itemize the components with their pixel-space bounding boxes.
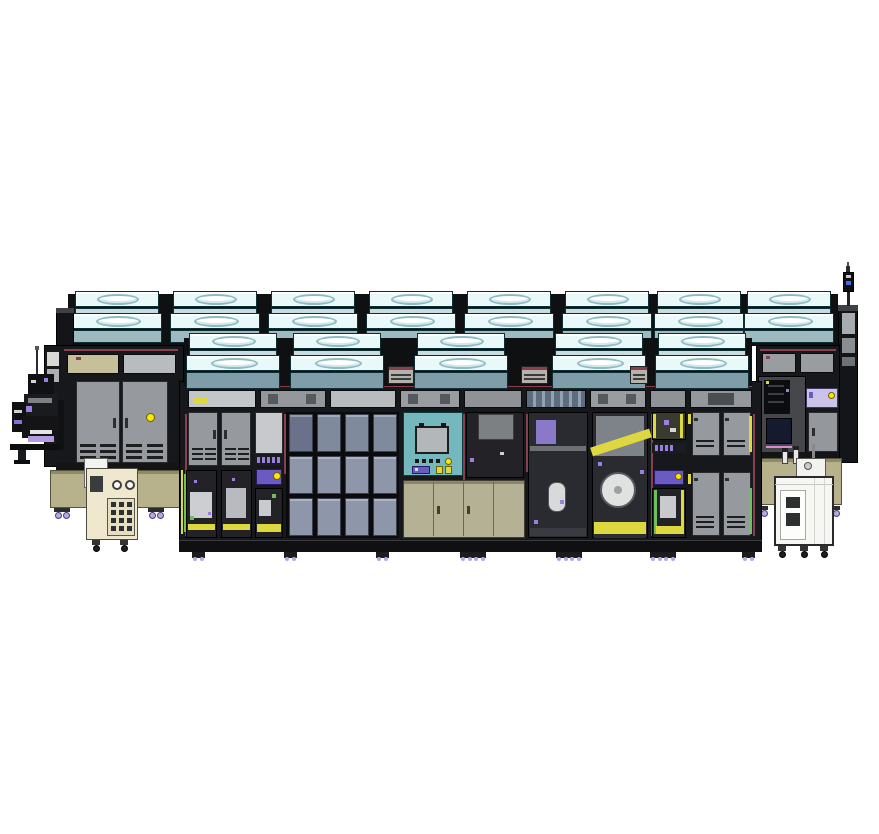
beacon-nub	[846, 266, 850, 272]
vent-slot	[192, 453, 203, 455]
keypad-button	[111, 510, 116, 515]
clerestory-window	[464, 390, 522, 408]
edge-strip-yellow	[653, 414, 656, 438]
interior-pip	[500, 452, 504, 455]
interior-machinery	[226, 488, 246, 518]
right-clerestory-maroon-dot	[766, 356, 770, 359]
khaki-cabinet-top-line	[404, 481, 524, 484]
ffu-vent-oval-icon	[489, 294, 531, 305]
vent-slot	[238, 453, 249, 455]
ffu-vent-oval-icon	[211, 358, 258, 369]
vent-slot	[696, 445, 714, 447]
right-column-panel	[842, 357, 855, 366]
ffu-vent-oval-icon	[96, 316, 141, 327]
ffu-vent-oval-icon	[212, 336, 256, 347]
vent-slot	[727, 526, 745, 528]
interior-pip	[232, 478, 235, 481]
interior-pip	[664, 420, 669, 425]
connector-pin	[272, 457, 275, 463]
ffu-top-face	[562, 313, 652, 329]
interior-box	[478, 414, 514, 440]
robot-lower-block	[22, 416, 58, 438]
left-roof-maroon-line	[64, 349, 178, 351]
ffu-vent-oval-icon	[586, 316, 631, 327]
left-column-panel	[47, 352, 59, 366]
vent-slot	[126, 444, 142, 447]
beacon-white-segment	[846, 275, 851, 278]
servo-pip	[766, 381, 769, 384]
vent-slot	[100, 450, 116, 453]
keypad-button	[127, 502, 132, 507]
ffu-front-face	[744, 330, 834, 343]
clerestory-cell	[440, 394, 450, 404]
door-handle	[224, 430, 227, 439]
edge-strip-yellow	[688, 414, 691, 424]
keypad-button	[119, 518, 124, 523]
panel-button-pip	[415, 468, 418, 471]
door-handle	[725, 478, 729, 481]
servo-pink-line	[766, 446, 792, 448]
robot-head	[28, 374, 54, 394]
white-cart-seam	[814, 478, 815, 544]
caster-wheel-icon	[285, 557, 289, 561]
ffu-top-face	[369, 291, 453, 307]
ffu-vent-oval-icon	[679, 294, 721, 305]
door-handle	[437, 506, 440, 514]
robot-label-strip	[30, 430, 52, 434]
ffu-top-face	[170, 313, 260, 329]
roof-gap-vent-maroon	[389, 367, 413, 370]
door-handle	[213, 430, 216, 439]
ffu-vent-oval-icon	[316, 336, 360, 347]
glass-pane	[317, 414, 341, 452]
robot-violet-strip	[28, 436, 54, 442]
caster-wheel-icon	[121, 545, 128, 552]
interior-pip	[194, 480, 197, 483]
keypad-button	[119, 526, 124, 531]
interior-pump-hub	[614, 486, 622, 494]
interior-floor	[594, 534, 646, 538]
robot-pip	[14, 420, 22, 424]
door-handle	[725, 418, 729, 421]
caster-wheel-icon	[461, 557, 465, 561]
keypad-button	[119, 502, 124, 507]
keypad-button	[111, 518, 116, 523]
right-roof-maroon-line	[760, 349, 836, 351]
ffu-top-face	[268, 313, 358, 329]
door-handle	[694, 478, 698, 481]
clerestory-window	[650, 390, 686, 408]
interior-pip	[670, 428, 676, 432]
caster-wheel-icon	[651, 557, 655, 561]
ffu-vent-oval-icon	[681, 336, 725, 347]
caster-wheel-icon	[577, 557, 581, 561]
caster-wheel-icon	[157, 512, 164, 519]
panel-button-yellow	[445, 466, 452, 474]
clerestory-cell	[598, 394, 608, 404]
keypad-button	[127, 518, 132, 523]
servo-pip	[786, 389, 789, 392]
caster-wheel-icon	[55, 512, 62, 519]
clerestory-yellow-item	[194, 398, 208, 404]
interior-pip	[560, 500, 564, 504]
vent-slot	[727, 521, 745, 523]
panel-button-icon	[415, 459, 419, 463]
right-column-panel	[842, 313, 855, 334]
beacon-blue-segment	[846, 281, 851, 285]
ffu-vent-oval-icon	[293, 294, 335, 305]
ffu-top-face	[744, 313, 834, 329]
door-handle	[125, 418, 128, 428]
ffu-front-face	[186, 372, 280, 389]
ffu-top-face	[654, 313, 744, 329]
glass-pane	[345, 498, 369, 536]
connector-pin	[655, 445, 658, 451]
connector-pin	[277, 457, 280, 463]
glass-pane	[345, 456, 369, 494]
interior-pip	[534, 520, 538, 524]
caster-wheel-icon	[481, 557, 485, 561]
glass-pane	[289, 456, 313, 494]
vent-slot	[696, 516, 714, 518]
vent-slot	[80, 450, 96, 453]
vent-slot	[205, 453, 216, 455]
emo-button-icon	[146, 413, 155, 422]
cabinet-door-seam	[463, 482, 464, 536]
ffu-top-face	[747, 291, 831, 307]
door-handle	[812, 428, 815, 436]
vent-slot	[238, 458, 249, 460]
white-cart-seam	[824, 478, 825, 544]
white-cart-slot	[786, 497, 800, 508]
servo-screen	[766, 418, 792, 444]
ffu-vent-oval-icon	[578, 336, 622, 347]
interior-yellow-base	[656, 526, 682, 534]
door-handle	[467, 506, 470, 514]
caster-wheel-icon	[664, 557, 668, 561]
ffu-vent-oval-icon	[488, 316, 533, 327]
connector-pin	[670, 445, 673, 451]
ffu-vent-oval-icon	[315, 358, 362, 369]
interior-pip	[272, 494, 276, 498]
connector-pin	[257, 457, 260, 463]
ffu-top-face	[173, 291, 257, 307]
ffu-front-face	[290, 372, 384, 389]
vent-slot	[147, 450, 163, 453]
ffu-top-face	[655, 355, 749, 371]
machine-root	[0, 0, 879, 834]
glass-pane	[373, 456, 397, 494]
connector-pin	[267, 457, 270, 463]
caster-wheel-icon	[671, 557, 675, 561]
vent-slot	[192, 458, 203, 460]
vent-slot	[633, 378, 645, 380]
white-cart-cylinder	[782, 450, 788, 464]
vent-slot	[205, 458, 216, 460]
robot-pip	[31, 380, 36, 383]
cart-dial-icon	[125, 480, 135, 490]
edge-strip-green	[749, 488, 752, 534]
caster-wheel-icon	[200, 557, 204, 561]
caster-wheel-icon	[384, 557, 388, 561]
edge-strip-yellow	[680, 414, 683, 438]
cabinet-door-seam	[493, 482, 494, 536]
vent-slot	[126, 456, 142, 459]
caster-wheel-icon	[801, 551, 808, 558]
ffu-vent-oval-icon	[768, 316, 813, 327]
ffu-top-face	[293, 333, 381, 349]
left-clerestory-maroon-dot	[76, 357, 81, 360]
post-maroon-strip	[753, 414, 755, 536]
vent-slot	[391, 374, 411, 376]
clerestory-cell	[708, 393, 734, 405]
caster-wheel-icon	[149, 512, 156, 519]
interior-yellow-base	[257, 524, 281, 532]
robot-pip	[26, 406, 32, 412]
caster-wheel-icon	[292, 557, 296, 561]
monitor-clip	[419, 423, 424, 427]
white-cart-pipe	[812, 444, 815, 458]
vent-slot	[80, 444, 96, 447]
panel-button-icon	[675, 473, 682, 480]
ffu-top-face	[464, 313, 554, 329]
vent-slot	[192, 448, 203, 450]
vent-slot	[147, 444, 163, 447]
vent-slot	[696, 440, 714, 442]
clerestory-cell	[408, 394, 418, 404]
door-handle	[113, 418, 116, 428]
vent-slot	[696, 521, 714, 523]
blank-panel	[255, 412, 283, 454]
ffu-top-face	[186, 355, 280, 371]
panel-button-icon	[273, 472, 281, 480]
glass-pane	[345, 414, 369, 452]
keypad-button	[127, 510, 132, 515]
caster-wheel-icon	[761, 510, 768, 517]
panel-button-icon	[445, 458, 452, 465]
left-end-cap	[56, 308, 74, 313]
ffu-top-face	[72, 313, 162, 329]
glass-pane	[289, 498, 313, 536]
caster-wheel-icon	[93, 545, 100, 552]
caster-wheel-icon	[557, 557, 561, 561]
door-handle	[694, 418, 698, 421]
ffu-vent-oval-icon	[587, 294, 629, 305]
ffu-top-face	[366, 313, 456, 329]
interior-machinery	[259, 500, 271, 516]
ffu-vent-oval-icon	[195, 294, 237, 305]
interior-pip	[208, 512, 211, 515]
caster-wheel-icon	[570, 557, 574, 561]
cart-dial-icon	[112, 480, 122, 490]
beacon-pole	[847, 292, 850, 306]
white-cart-cylinder-cap	[793, 446, 799, 450]
caster-wheel-icon	[779, 551, 786, 558]
ffu-vent-oval-icon	[440, 336, 484, 347]
vent-slot	[225, 453, 236, 455]
left-end-column	[56, 308, 74, 348]
interior-yellow-base	[594, 522, 646, 534]
panel-button-icon	[422, 459, 426, 463]
caster-wheel-icon	[750, 557, 754, 561]
lavender-panel-button-icon	[828, 392, 835, 399]
vent-slot	[524, 378, 545, 380]
vent-slot	[391, 378, 411, 380]
edge-strip-yellow	[749, 416, 752, 452]
clerestory-cell	[268, 394, 278, 404]
ffu-vent-oval-icon	[292, 316, 337, 327]
vent-slot	[238, 448, 249, 450]
ffu-vent-oval-icon	[680, 358, 727, 369]
glass-pane	[373, 414, 397, 452]
vent-slot	[225, 458, 236, 460]
ffu-top-face	[467, 291, 551, 307]
interior-pip	[190, 516, 194, 520]
robot-pip	[14, 410, 22, 413]
clerestory-cell	[626, 394, 636, 404]
clerestory-window	[330, 390, 396, 408]
ffu-vent-oval-icon	[194, 316, 239, 327]
cream-cart-display	[90, 476, 103, 492]
panel-button-icon	[429, 459, 433, 463]
roof-gap-vent-maroon	[522, 367, 547, 370]
panel-button-icon	[436, 459, 440, 463]
interior-machinery	[536, 420, 556, 444]
interior-pip	[470, 458, 474, 462]
vent-slot	[126, 450, 142, 453]
interior-pip	[598, 462, 602, 466]
ffu-top-face	[290, 355, 384, 371]
robot-antenna-tip	[35, 346, 39, 350]
left-clerestory-window	[67, 354, 119, 374]
monitor-clip	[441, 423, 446, 427]
ffu-front-face	[655, 372, 749, 389]
interior-machinery	[660, 496, 676, 518]
right-column-panel	[842, 338, 855, 353]
interior-yellow-base	[188, 524, 215, 530]
caster-wheel-icon	[743, 557, 747, 561]
vent-slot	[524, 374, 545, 376]
glass-pane	[317, 498, 341, 536]
vent-slot	[696, 526, 714, 528]
servo-drive-stripe	[768, 385, 784, 387]
ffu-vent-oval-icon	[97, 294, 139, 305]
roof-gap-vent-maroon	[631, 367, 647, 370]
white-cart-slot	[786, 513, 800, 526]
ffu-top-face	[75, 291, 159, 307]
ffu-vent-oval-icon	[391, 294, 433, 305]
caster-wheel-icon	[377, 557, 381, 561]
ffu-vent-oval-icon	[577, 358, 624, 369]
ffu-top-face	[658, 333, 746, 349]
ffu-top-face	[555, 333, 643, 349]
robot-foot	[14, 460, 30, 464]
vent-slot	[727, 516, 745, 518]
khaki-cabinet	[403, 480, 525, 538]
servo-drive-stripe	[768, 393, 784, 395]
interior-pip	[640, 470, 644, 474]
ffu-vent-oval-icon	[678, 316, 723, 327]
caster-wheel-icon	[833, 510, 840, 517]
vent-slot	[147, 456, 163, 459]
ffu-top-face	[565, 291, 649, 307]
connector-pin	[660, 445, 663, 451]
beacon-tip	[847, 262, 849, 266]
vent-slot	[727, 445, 745, 447]
ffu-top-face	[417, 333, 505, 349]
interior-cylinder	[548, 482, 566, 512]
keypad-button	[127, 526, 132, 531]
front-base	[179, 540, 762, 552]
glass-pane	[317, 456, 341, 494]
right-clerestory-window	[800, 353, 834, 373]
robot-antenna	[36, 350, 38, 374]
caster-wheel-icon	[63, 512, 70, 519]
vent-slot	[205, 448, 216, 450]
ffu-top-face	[414, 355, 508, 371]
vent-slot	[727, 440, 745, 442]
white-cart-cylinder-cap	[782, 448, 788, 452]
keypad-button	[119, 510, 124, 515]
vent-slot	[100, 444, 116, 447]
panel-monitor	[415, 426, 449, 454]
interior-floor	[530, 528, 586, 536]
clerestory-cell	[306, 394, 316, 404]
robot-body-bar	[28, 398, 52, 403]
caster-wheel-icon	[468, 557, 472, 561]
keypad-button	[111, 526, 116, 531]
caster-wheel-icon	[193, 557, 197, 561]
cad-machine-illustration	[0, 0, 879, 834]
panel-button-yellow	[436, 466, 443, 474]
interior-yellow-base	[223, 524, 250, 530]
ffu-vent-oval-icon	[390, 316, 435, 327]
caster-wheel-icon	[658, 557, 662, 561]
edge-strip-yellow	[181, 470, 183, 534]
ffu-top-face	[657, 291, 741, 307]
glass-pane	[289, 414, 313, 452]
vent-slot	[225, 448, 236, 450]
caster-wheel-icon	[474, 557, 478, 561]
lavender-panel-pip	[809, 392, 813, 398]
keypad-button	[111, 502, 116, 507]
ffu-vent-oval-icon	[769, 294, 811, 305]
cabinet-door-seam	[433, 482, 434, 536]
connector-pin	[665, 445, 668, 451]
servo-drive-stripe	[768, 401, 784, 403]
interior-shelf	[530, 446, 586, 451]
caster-wheel-icon	[564, 557, 568, 561]
clerestory-window	[526, 390, 586, 408]
white-cart-knob-icon	[804, 462, 812, 470]
ffu-vent-oval-icon	[439, 358, 486, 369]
ffu-top-face	[271, 291, 355, 307]
vent-slot	[633, 374, 645, 376]
caster-wheel-icon	[821, 551, 828, 558]
left-clerestory-window	[123, 354, 176, 374]
robot-pip	[44, 378, 48, 382]
ffu-front-face	[414, 372, 508, 389]
glass-pane	[373, 498, 397, 536]
connector-pin	[262, 457, 265, 463]
edge-strip-yellow	[688, 474, 691, 484]
ffu-top-face	[189, 333, 277, 349]
ffu-front-face	[72, 330, 162, 343]
